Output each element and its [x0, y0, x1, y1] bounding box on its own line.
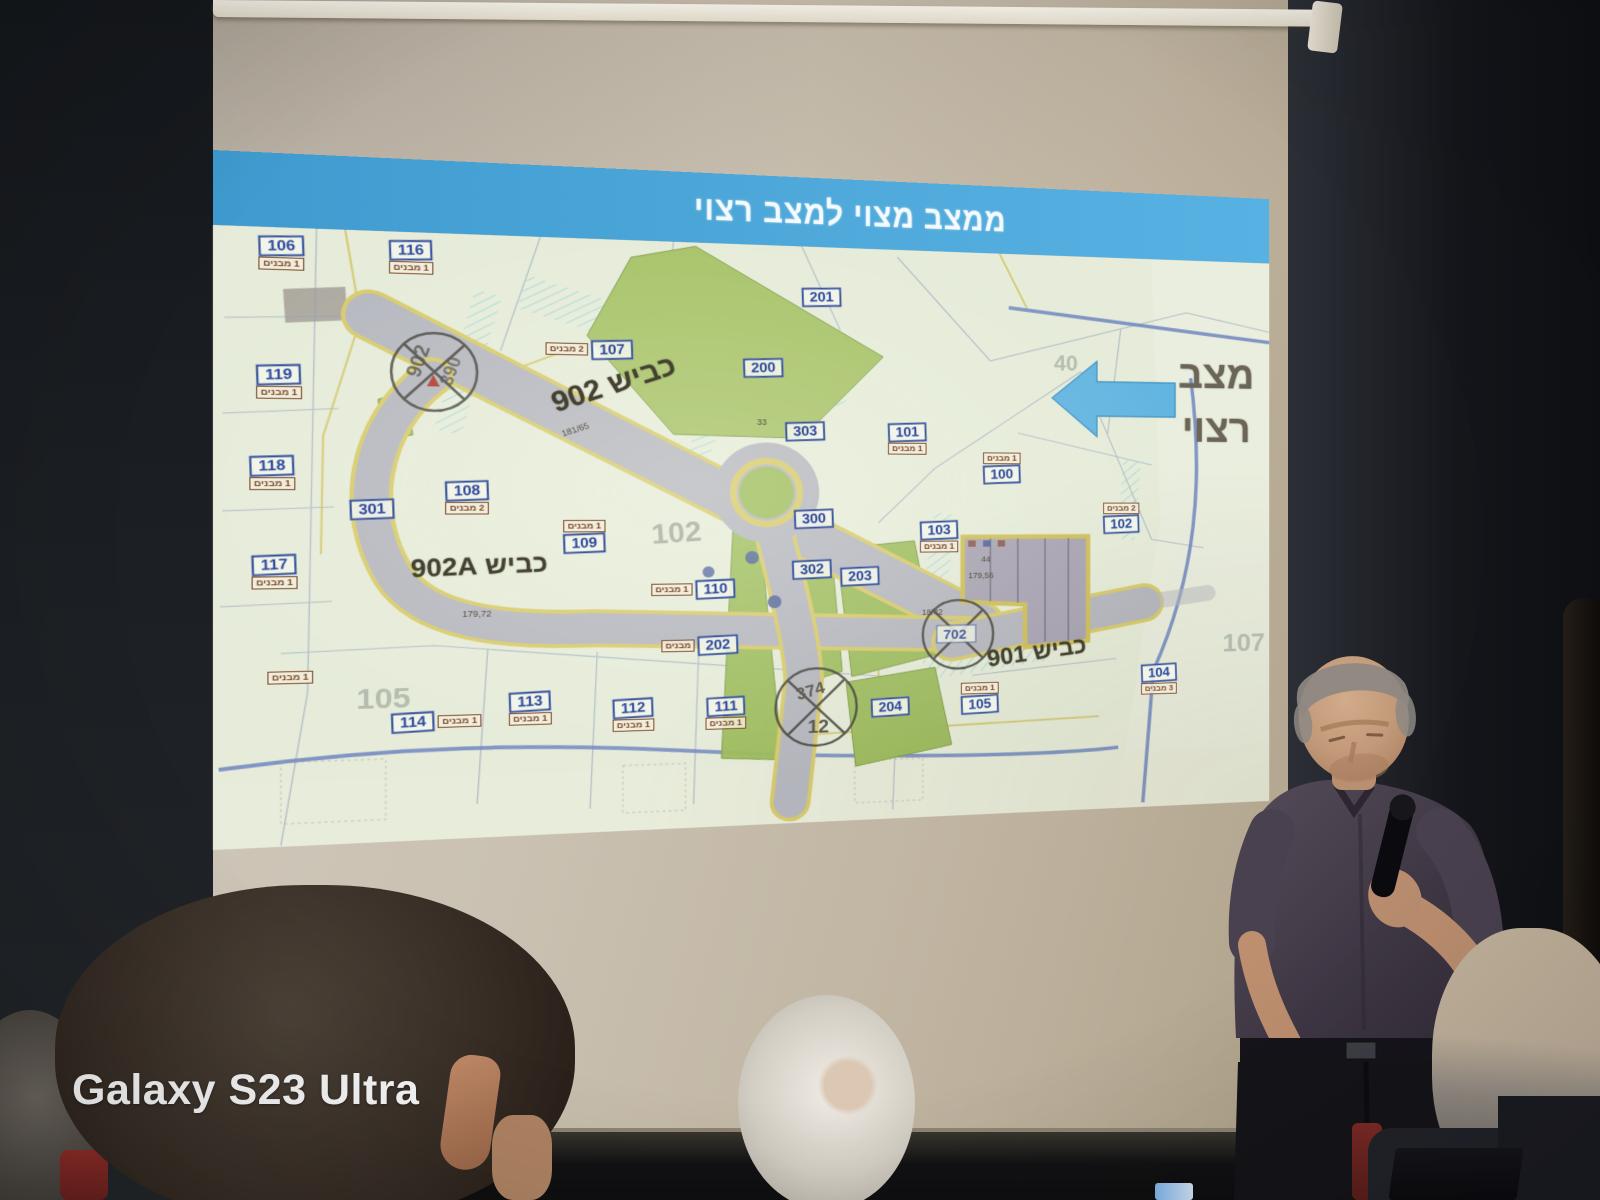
- red-chair: [60, 1150, 108, 1200]
- plot-tag: 1 מבנים: [961, 682, 998, 695]
- plot-tag: 1 מבנים: [256, 386, 302, 400]
- phone-screen: [1155, 1183, 1193, 1200]
- plot-label: 303: [785, 421, 825, 441]
- plot-tag: 1 מבנים: [252, 576, 298, 589]
- plot-tag: 1 מבנים: [706, 717, 746, 730]
- plot-label: 300: [794, 509, 834, 528]
- plot-label: 1022 מבנים: [1103, 503, 1139, 534]
- plot-tag: 1 מבנים: [983, 452, 1020, 464]
- plot-number: 100: [983, 465, 1021, 485]
- plot-label: 1171 מבנים: [252, 554, 298, 589]
- plot-label: 204: [871, 697, 910, 717]
- plot-number: 202: [697, 634, 738, 656]
- plot-number: 112: [613, 697, 655, 719]
- plot-number: 300: [794, 509, 834, 530]
- plot-tag: 1 מבנים: [920, 541, 958, 553]
- plot-tag: 1 מבנים: [509, 712, 552, 726]
- site-plan-drawing: 902 390 374 12 702: [213, 225, 1269, 850]
- plot-tag: 1 מבנים: [259, 256, 305, 270]
- plot-number: 200: [743, 358, 784, 378]
- plot-label: 1011 מבנים: [888, 423, 927, 455]
- side-note-line2: רצוי: [1165, 401, 1268, 456]
- plot-tag: 1 מבנים: [651, 583, 692, 596]
- presentation-photo: ממצב מצוי למצב רצוי: [0, 0, 1600, 1200]
- plot-label: 1161 מבנים: [389, 239, 433, 275]
- plot-number: 113: [509, 690, 552, 713]
- plot-number: 301: [349, 498, 395, 520]
- plot-number: 203: [840, 566, 880, 587]
- site-plan-map: 902 390 374 12 702 102 105 107 40 44 179…: [213, 225, 1269, 850]
- plot-tag: 1 מבנים: [389, 261, 433, 275]
- slide: ממצב מצוי למצב רצוי: [213, 150, 1269, 850]
- plot-number: 117: [251, 554, 297, 577]
- plot-label: 1121 מבנים: [613, 698, 654, 732]
- audience-head-center: [738, 995, 915, 1200]
- plot-label: 1031 מבנים: [920, 521, 958, 553]
- plot-tag: מבנים: [661, 639, 694, 652]
- slide-title: ממצב מצוי למצב רצוי: [540, 181, 1006, 239]
- plot-number: 111: [706, 695, 746, 717]
- plot-label: 200: [743, 358, 783, 378]
- svg-text:702: 702: [943, 627, 966, 643]
- plot-label: 1072 מבנים: [546, 338, 633, 360]
- plot-tag: 1 מבנים: [438, 714, 481, 728]
- plot-number: 118: [249, 455, 295, 477]
- plot-label: 1001 מבנים: [983, 452, 1021, 484]
- plot-number: 116: [389, 240, 433, 261]
- plot-number: 114: [391, 711, 435, 734]
- plot-tag: 2 מבנים: [1103, 503, 1139, 514]
- side-note-line1: מצב: [1165, 347, 1268, 403]
- plot-tag: 1 מבנים: [563, 520, 605, 533]
- plot-label: 1131 מבנים: [509, 691, 552, 726]
- plot-label: 203: [840, 567, 879, 587]
- big-parcel-number: 102: [650, 516, 703, 551]
- laptop: [1388, 1148, 1523, 1200]
- plot-number: 119: [256, 364, 302, 385]
- map-annotation: 179,56: [968, 571, 993, 580]
- audience-neck: [492, 1115, 552, 1200]
- plot-label: 202מבנים: [661, 635, 738, 656]
- map-annotation: 18/42: [922, 607, 943, 616]
- plot-label: 1051 מבנים: [961, 682, 999, 715]
- plot-label: 302: [792, 560, 832, 580]
- plot-label: 1181 מבנים: [249, 455, 295, 490]
- plot-number: 107: [590, 340, 633, 360]
- plot-label: 201: [802, 287, 842, 307]
- plot-number: 109: [563, 533, 606, 555]
- plot-label: 301: [350, 499, 395, 520]
- road-label-902a: כביש 902A: [410, 549, 548, 584]
- plot-number: 102: [1103, 514, 1140, 534]
- plot-label: 1191 מבנים: [256, 364, 302, 399]
- plot-label: 1061 מבנים: [258, 235, 304, 271]
- plot-tag: 1 מבנים: [249, 477, 295, 490]
- svg-text:12: 12: [808, 716, 830, 737]
- belt-buckle: [1346, 1042, 1376, 1059]
- watermark: Galaxy S23 Ultra: [72, 1066, 419, 1115]
- plot-number: 303: [785, 421, 825, 441]
- plot-number: 302: [792, 559, 832, 580]
- plot-label: 1091 מבנים: [563, 520, 605, 553]
- plot-label: 1 מבנים: [267, 671, 313, 685]
- plot-number: 101: [888, 422, 927, 442]
- plot-number: 110: [695, 578, 736, 599]
- plot-label: 1141 מבנים: [391, 710, 481, 733]
- map-annotation: 179,72: [462, 609, 491, 619]
- map-annotation: 33: [757, 417, 767, 426]
- plot-tag: 1 מבנים: [267, 671, 313, 685]
- big-parcel-number: 40: [1054, 352, 1078, 377]
- presenter-head: [1288, 650, 1423, 788]
- plot-label: 1101 מבנים: [651, 579, 735, 600]
- plot-number: 201: [801, 288, 841, 307]
- plot-number: 105: [961, 694, 999, 715]
- plot-tag: 1 מבנים: [613, 718, 654, 732]
- map-annotation: 44: [981, 555, 990, 564]
- plot-number: 106: [258, 235, 305, 256]
- plot-number: 108: [445, 480, 489, 502]
- plot-label: 1111 מבנים: [706, 696, 746, 730]
- plot-label: 1082 מבנים: [445, 481, 489, 515]
- screen-roller-cap: [1307, 0, 1343, 53]
- side-note: מצב רצוי: [1165, 347, 1268, 456]
- plot-number: 204: [871, 696, 910, 718]
- plot-tag: 1 מבנים: [888, 443, 926, 455]
- plot-number: 103: [920, 520, 959, 540]
- plot-tag: 2 מבנים: [445, 502, 488, 515]
- plot-tag: 2 מבנים: [546, 342, 588, 355]
